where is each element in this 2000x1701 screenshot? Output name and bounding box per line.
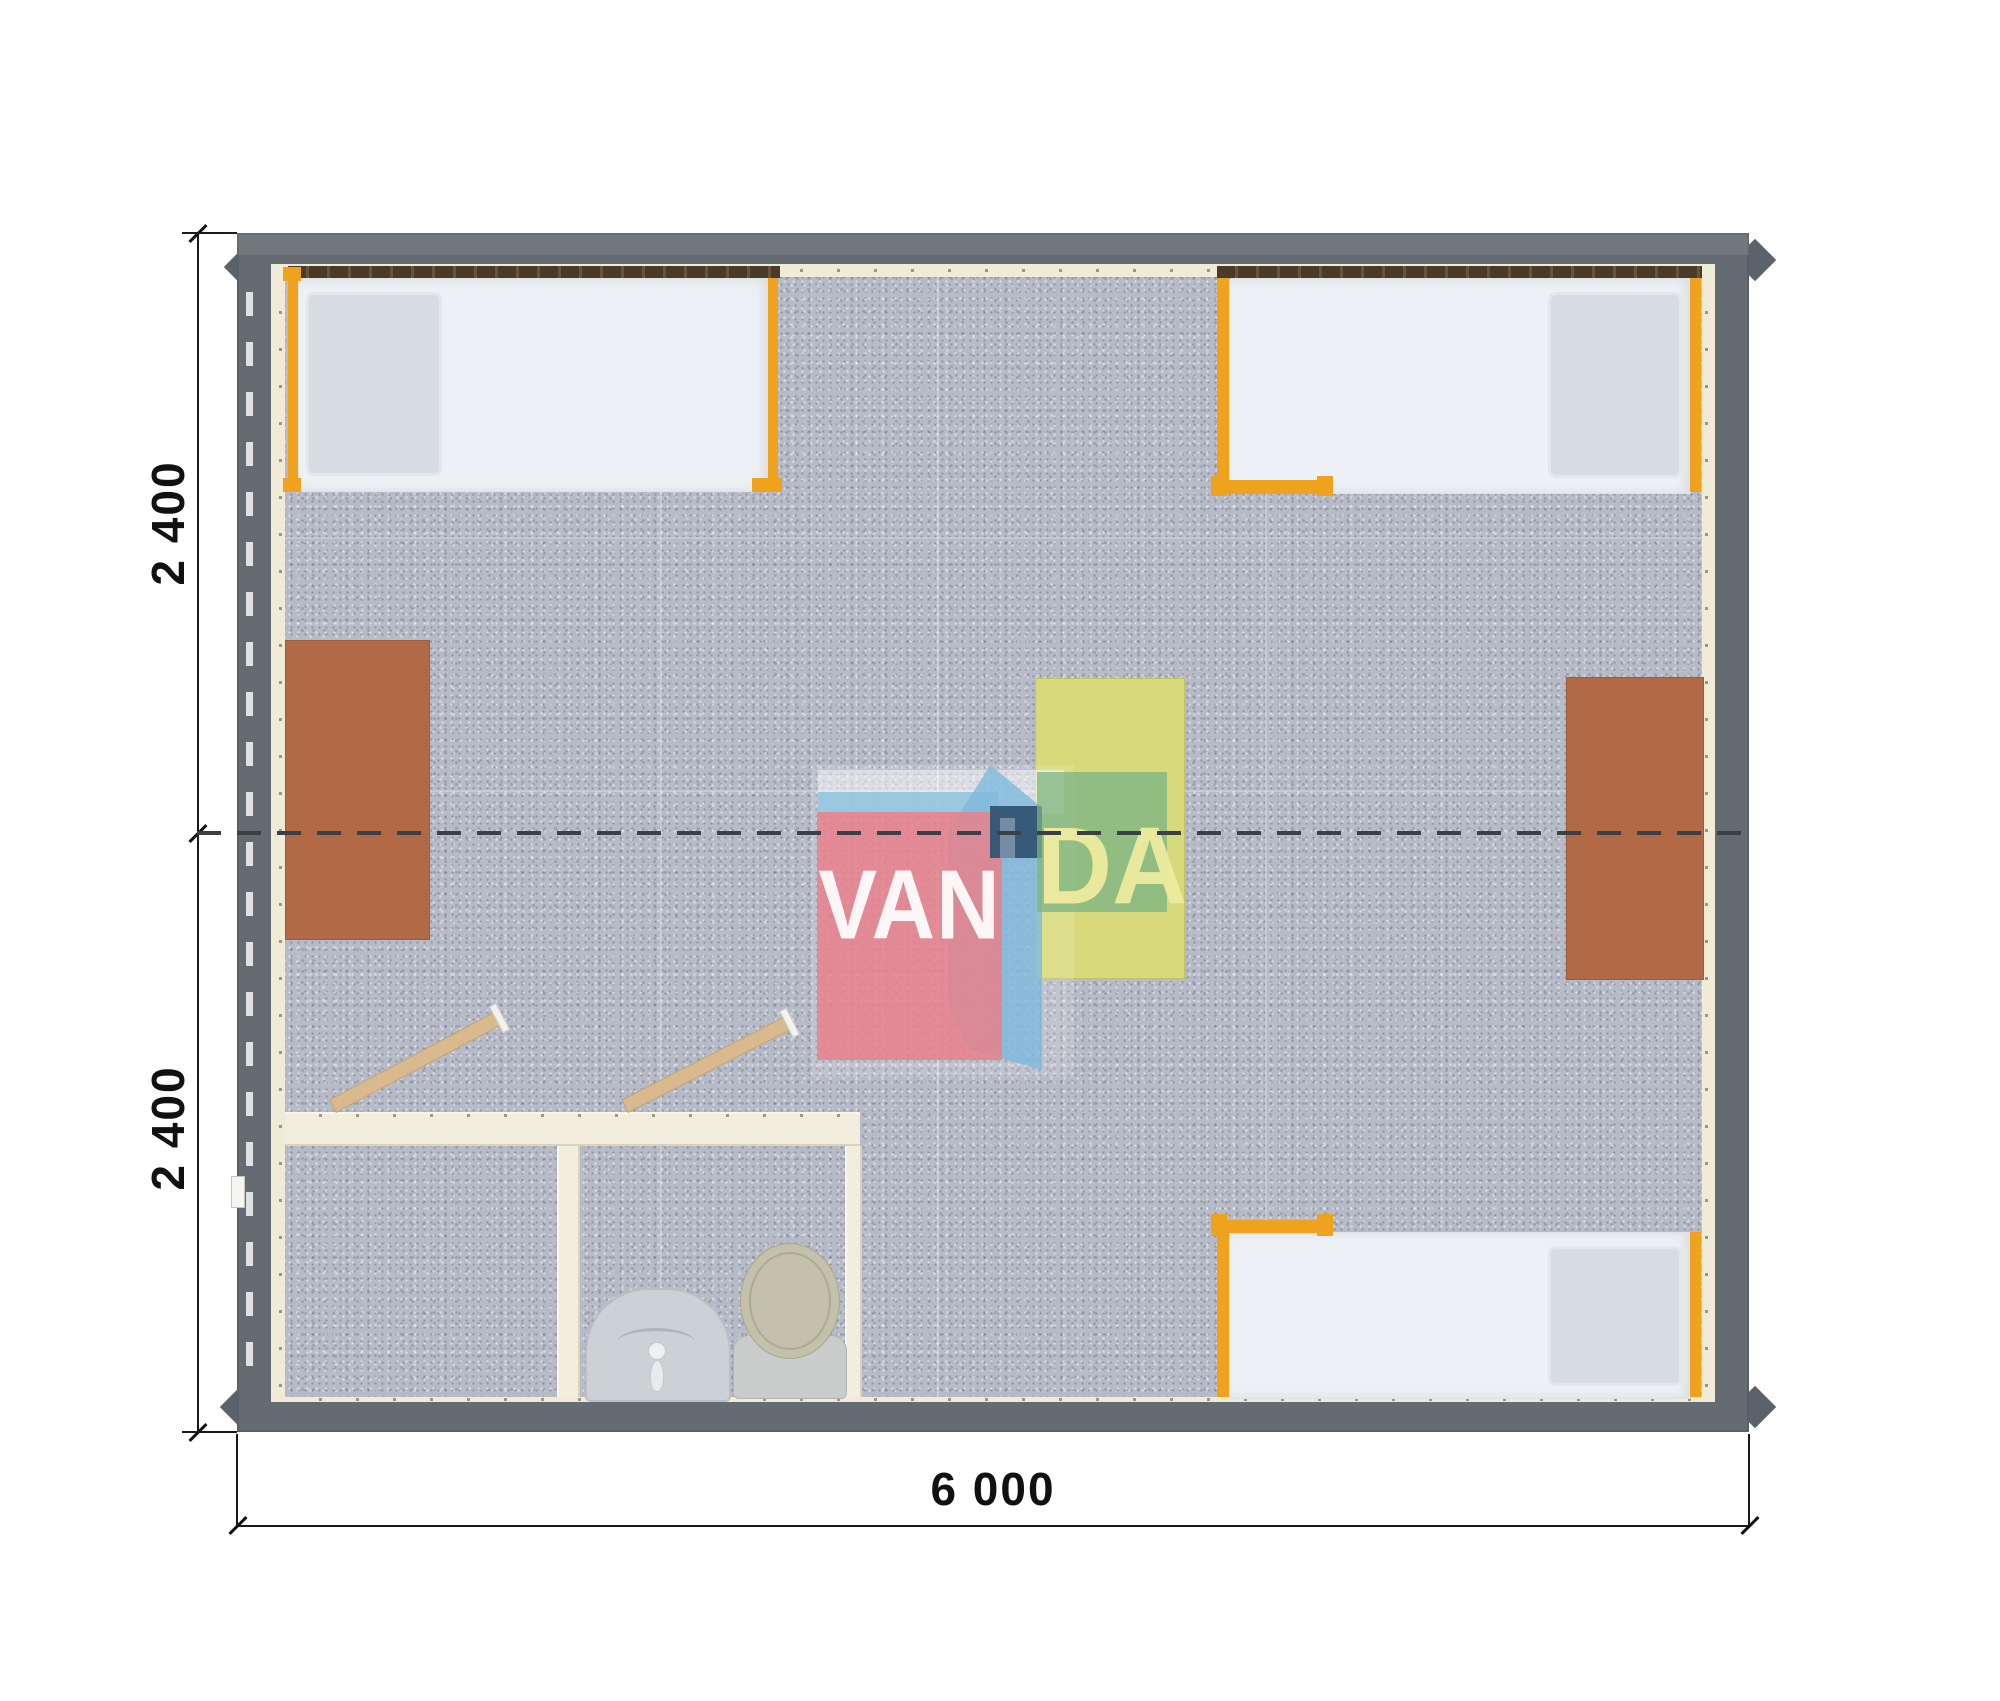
washbasin-faucet [648, 1342, 666, 1360]
bed-frame-corner [1211, 476, 1227, 496]
centerline [197, 831, 1757, 835]
watermark-red-box: VAN [817, 812, 1002, 1060]
dimension-extension-corner-left [236, 1434, 238, 1528]
dimension-extension-top-left [182, 232, 237, 234]
bed-top-right-frame-head [1690, 278, 1701, 492]
bed-frame-corner [1317, 476, 1333, 496]
dimension-label-left-top: 2 400 [144, 403, 192, 643]
lining-seam-right [1705, 277, 1708, 1397]
bathroom-front-wall [285, 1112, 860, 1146]
watermark-text-da: DA [1037, 809, 1167, 925]
floor-plan-canvas: 2 400 2 400 6 000 [0, 0, 2000, 1701]
washbasin-drain [650, 1360, 664, 1392]
watermark-green-box: DA [1037, 772, 1167, 912]
bed-bottom-right-frame-bar [1217, 1220, 1323, 1233]
dimension-line-bottom [237, 1525, 1749, 1527]
desk-right [1566, 677, 1704, 980]
bed-bottom-right-frame-foot [1217, 1220, 1229, 1397]
dimension-label-left-bottom: 2 400 [144, 1008, 192, 1248]
bathroom-wall-seam [285, 1114, 860, 1117]
window-rail-top-right [1217, 266, 1702, 278]
bathroom-mid-partition [557, 1146, 580, 1397]
floor-seam [285, 537, 1702, 539]
bathroom-right-partition [845, 1146, 862, 1397]
bed-bottom-right-frame-head [1690, 1232, 1701, 1397]
left-wall-vent [231, 1176, 245, 1208]
toilet-lid [740, 1243, 840, 1359]
bed-bottom-right-pillow [1548, 1246, 1682, 1386]
bed-frame-corner [1317, 1214, 1333, 1236]
bed-top-left-frame-head [288, 278, 298, 490]
watermark-text-van: VAN [817, 843, 1002, 966]
dimension-extension-corner-right [1748, 1434, 1750, 1528]
desk-left [285, 640, 430, 940]
bed-frame-corner [1211, 1214, 1227, 1236]
bed-top-right-frame-foot [1217, 278, 1229, 480]
left-wall-cladding [246, 292, 253, 1390]
bed-frame-corner [752, 478, 782, 492]
bed-frame-corner [283, 267, 301, 281]
bed-frame-corner [283, 478, 301, 492]
window-rail-top-left [288, 266, 780, 278]
washbasin [585, 1288, 731, 1402]
bed-top-right-pillow [1548, 292, 1682, 478]
wall-top-highlight [237, 233, 1749, 255]
watermark-navy-inner [1000, 818, 1015, 858]
lining-seam-left [279, 277, 282, 1397]
bed-top-left-frame-foot [768, 278, 778, 490]
bed-top-right-frame-bar [1217, 480, 1323, 494]
bed-top-left-pillow [306, 292, 442, 476]
dimension-extension-bottom-left [182, 1431, 237, 1433]
dimension-label-bottom: 6 000 [843, 1462, 1143, 1516]
